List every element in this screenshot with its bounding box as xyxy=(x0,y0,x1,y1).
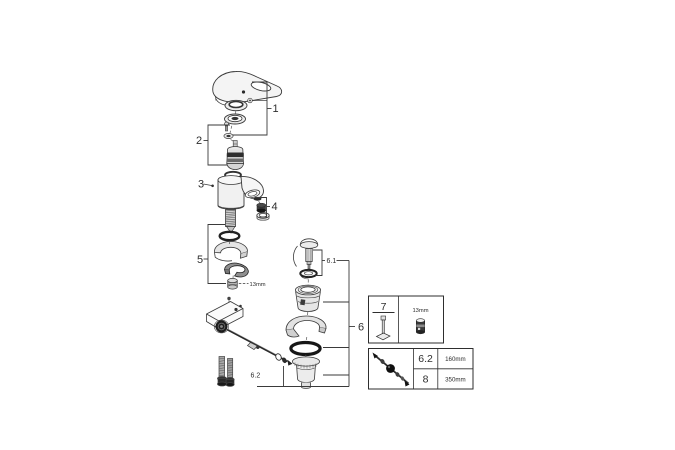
stud-left xyxy=(217,357,226,387)
plug-guide-arc xyxy=(293,246,297,267)
size-table-length-8: 350mm xyxy=(445,377,466,384)
popup-plug xyxy=(300,239,318,269)
handle-assembly xyxy=(213,71,282,135)
body-o-ring xyxy=(220,232,240,240)
drain-saddle xyxy=(286,316,326,337)
mounting-nut xyxy=(228,278,238,289)
aerator-assembly xyxy=(254,197,271,220)
nut-size-label: 13mm xyxy=(250,282,266,288)
size-table-part-6-2: 6.2 xyxy=(418,353,433,365)
callout-label-5: 5 xyxy=(197,254,203,266)
size-table-part-8: 8 xyxy=(423,374,429,386)
cartridge-assembly xyxy=(204,122,244,178)
pivot-knob xyxy=(214,320,228,333)
mounting-assembly xyxy=(204,225,249,290)
drain-lower-body xyxy=(292,357,319,388)
callout-label-4: 4 xyxy=(271,201,277,213)
plate-screw xyxy=(227,297,230,300)
socket-bit-icon xyxy=(416,319,424,334)
aerator-ring xyxy=(257,213,269,221)
exploded-parts-diagram-page: 1 2 xyxy=(0,0,675,450)
threaded-shank xyxy=(226,210,236,234)
aerator-core xyxy=(257,203,266,212)
plug-seal xyxy=(300,270,316,279)
callout-label-3: 3 xyxy=(198,179,204,191)
drain-o-ring xyxy=(291,343,320,355)
callout-label-6: 6 xyxy=(358,322,364,334)
mounting-bracket-horseshoe xyxy=(214,241,247,261)
size-table-length-6-2: 160mm xyxy=(445,356,466,363)
handle-grub-screw xyxy=(242,90,245,93)
callout-label-6-1: 6.1 xyxy=(327,258,337,265)
rod-tip xyxy=(288,360,293,366)
callout-leader-3 xyxy=(204,184,212,186)
drain-flange xyxy=(295,285,320,311)
mounting-studs xyxy=(217,357,234,387)
handle-lever xyxy=(213,71,282,102)
cartridge xyxy=(227,141,244,170)
stud-right xyxy=(226,359,234,387)
callout-label-2: 2 xyxy=(196,135,202,147)
callout-label-1: 1 xyxy=(272,103,278,115)
retaining-clip xyxy=(225,263,249,277)
callout-label-6-2: 6.2 xyxy=(251,373,261,380)
faucet-exploded-diagram: 1 2 xyxy=(0,0,675,450)
tool-box-number: 7 xyxy=(381,301,387,313)
drain-assembly xyxy=(257,239,355,389)
tool-box-socket-size: 13mm xyxy=(412,308,428,314)
